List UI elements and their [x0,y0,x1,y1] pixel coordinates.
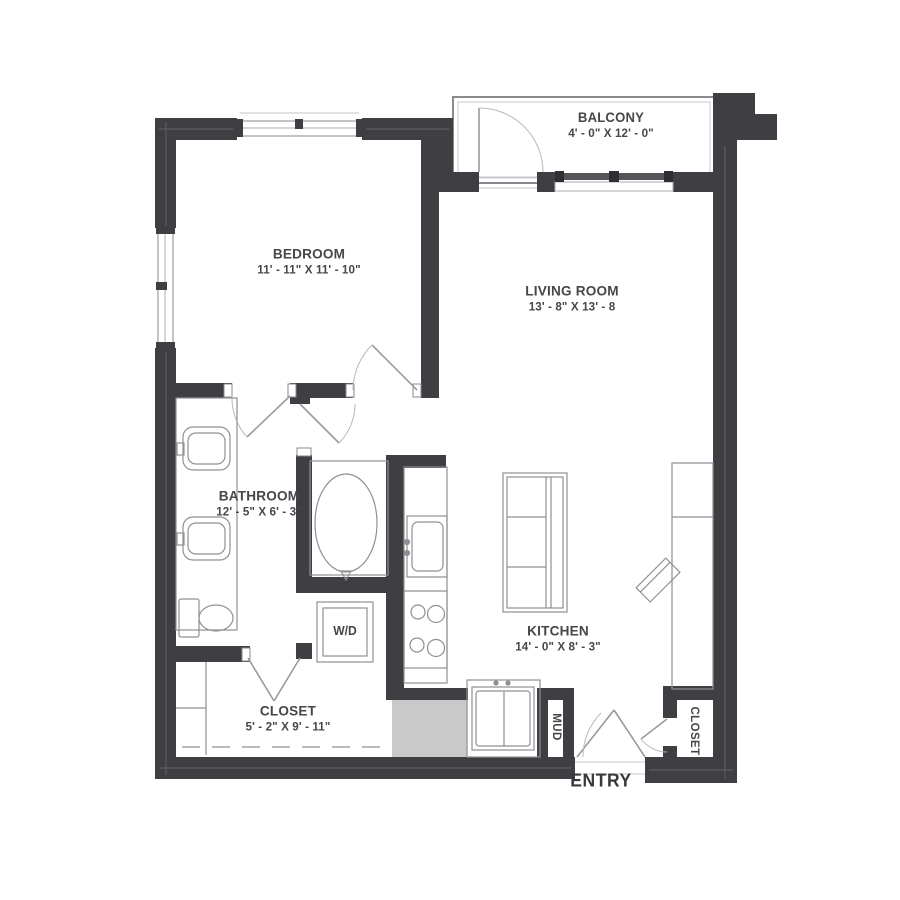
balcony-dims: 4' - 0" X 12' - 0" [568,126,654,140]
living-room-name: LIVING ROOM [525,283,618,300]
balcony-name: BALCONY [568,110,654,126]
bathroom-name: BATHROOM [216,488,302,505]
bathroom-label: BATHROOM 12' - 5" X 6' - 3" [216,488,302,519]
kitchen-dims: 14' - 0" X 8' - 3" [515,639,601,653]
floor-plan-page: BEDROOM 11' - 11" X 11' - 10" LIVING ROO… [0,0,900,900]
bedroom-dims: 11' - 11" X 11' - 10" [257,262,360,276]
living-room-dims: 13' - 8" X 13' - 8 [525,299,618,313]
entry-label: ENTRY [570,771,631,792]
mud-label: MUD [550,713,562,740]
closet-label: CLOSET 5' - 2" X 9' - 11" [246,703,331,734]
washer-dryer-label: W/D [333,624,357,638]
closet-dims: 5' - 2" X 9' - 11" [246,719,331,733]
labels-layer: BEDROOM 11' - 11" X 11' - 10" LIVING ROO… [0,0,900,900]
entry-closet-label: CLOSET [688,706,700,755]
kitchen-label: KITCHEN 14' - 0" X 8' - 3" [515,623,601,654]
living-room-label: LIVING ROOM 13' - 8" X 13' - 8 [525,283,618,314]
balcony-label: BALCONY 4' - 0" X 12' - 0" [568,110,654,140]
closet-name: CLOSET [246,703,331,720]
bedroom-name: BEDROOM [257,246,360,263]
bathroom-dims: 12' - 5" X 6' - 3" [216,504,302,518]
kitchen-name: KITCHEN [515,623,601,640]
bedroom-label: BEDROOM 11' - 11" X 11' - 10" [257,246,360,277]
